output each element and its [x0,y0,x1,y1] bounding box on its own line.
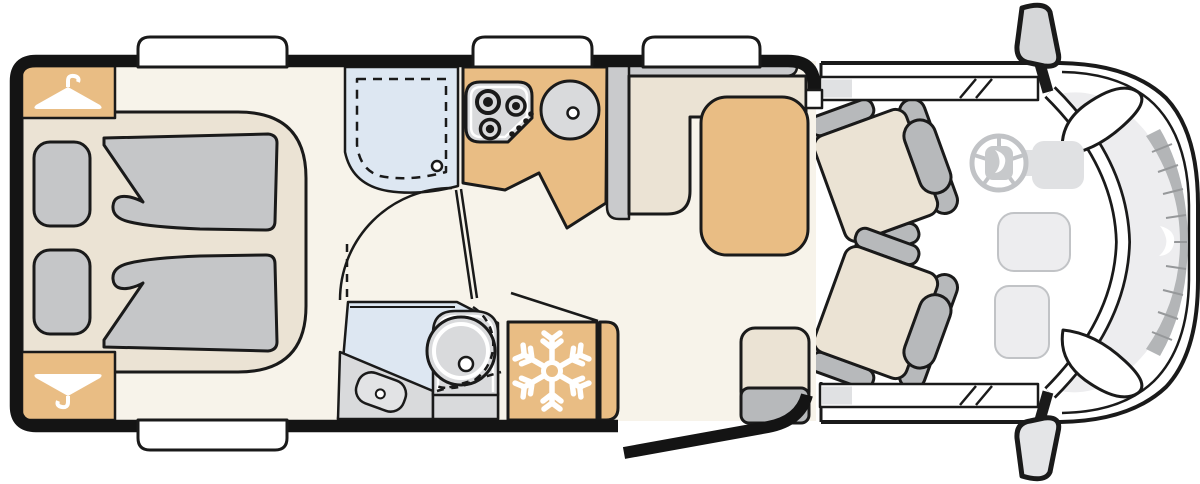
pillow-top [34,142,90,226]
window-bedroom-top [138,37,287,67]
door-pillar-pane [822,80,852,98]
pillow-bottom [34,250,90,334]
steering-wheel-icon [972,136,1026,190]
door-pillar-pane [822,387,852,405]
cab-window-strip-top [820,77,1038,100]
floorplan-svg [0,0,1200,484]
shower-cubicle [345,67,458,193]
toilet [427,307,501,395]
cab-window-strip-bottom [820,384,1038,407]
duvet-bottom [104,255,277,351]
fridge-door-edge [600,322,618,420]
window-kitchen [473,37,592,67]
cab-section [804,5,1198,478]
wardrobe-top [22,66,115,118]
bench-backrest-left [607,57,629,219]
sink-icon [541,81,599,139]
shower-drain [432,161,442,171]
toilet-pedestal [433,393,498,419]
center-console [998,213,1070,271]
dinette-table [701,97,808,255]
engine-console [995,286,1049,358]
passenger-seat [804,224,969,408]
window-dinette [643,37,760,67]
window-bedroom-bottom [138,420,287,450]
wardrobe-bottom [22,352,115,420]
washroom [338,302,501,419]
bedroom [22,112,306,372]
entry-door-jamb [806,90,822,108]
dashboard-block [1032,141,1084,189]
floorplan-canvas [0,0,1200,484]
duvet-top [104,134,277,230]
toilet-drain [459,357,473,371]
